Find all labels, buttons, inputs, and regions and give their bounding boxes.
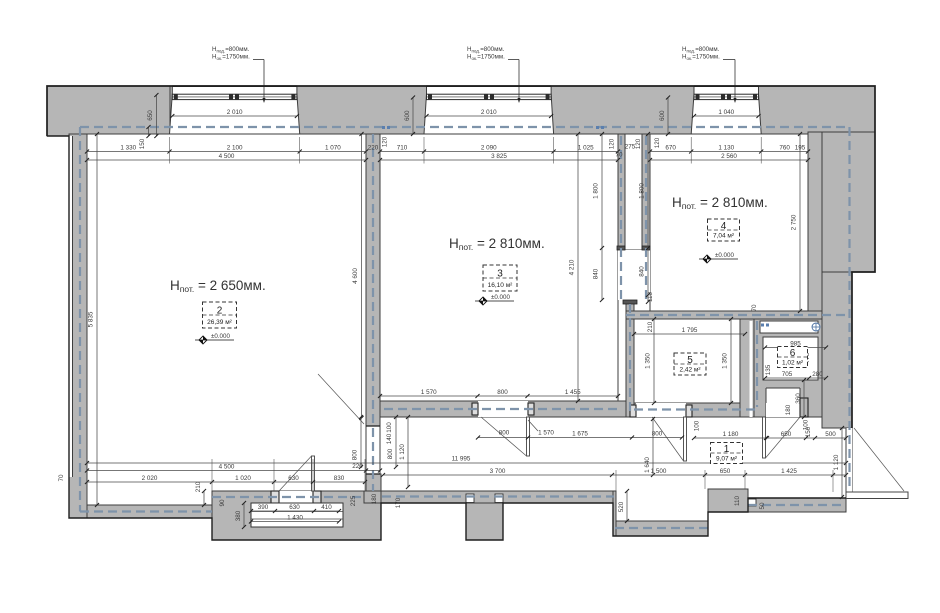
svg-text:280: 280 [812, 371, 823, 378]
svg-text:1 350: 1 350 [645, 353, 652, 369]
svg-text:4 500: 4 500 [219, 464, 235, 471]
svg-text:390: 390 [258, 504, 269, 511]
svg-text:1 425: 1 425 [781, 468, 797, 475]
svg-text:2 750: 2 750 [791, 214, 798, 230]
svg-text:2 010: 2 010 [227, 109, 243, 116]
svg-text:70: 70 [751, 304, 758, 312]
svg-text:135: 135 [765, 364, 772, 375]
svg-text:4 210: 4 210 [569, 259, 576, 275]
svg-text:3 700: 3 700 [490, 468, 506, 475]
svg-text:1 800: 1 800 [639, 183, 646, 199]
svg-text:1 020: 1 020 [235, 475, 251, 482]
svg-text:800: 800 [387, 448, 394, 459]
svg-text:1 675: 1 675 [572, 431, 588, 438]
svg-text:100: 100 [386, 422, 393, 433]
svg-text:110: 110 [647, 291, 654, 302]
svg-text:2,42 м²: 2,42 м² [679, 367, 701, 374]
svg-text:±0.000: ±0.000 [491, 294, 510, 301]
svg-text:1,02 м²: 1,02 м² [782, 359, 804, 366]
svg-text:2 100: 2 100 [227, 145, 243, 152]
svg-text:800: 800 [352, 449, 359, 460]
svg-text:1 120: 1 120 [399, 444, 406, 460]
svg-text:210: 210 [195, 481, 202, 492]
svg-text:650: 650 [781, 431, 792, 438]
svg-text:500: 500 [825, 431, 836, 438]
svg-text:120: 120 [609, 138, 616, 149]
svg-text:630: 630 [289, 504, 300, 511]
svg-text:670: 670 [665, 145, 676, 152]
svg-text:3 825: 3 825 [491, 153, 507, 160]
svg-text:1 500: 1 500 [651, 468, 667, 475]
svg-text:760: 760 [779, 145, 790, 152]
svg-text:220: 220 [368, 145, 379, 152]
svg-text:110: 110 [734, 495, 741, 506]
svg-text:16,10 м²: 16,10 м² [488, 282, 514, 289]
svg-text:2 010: 2 010 [481, 109, 497, 116]
svg-text:2 560: 2 560 [721, 153, 737, 160]
svg-text:1 040: 1 040 [718, 109, 734, 116]
svg-text:650: 650 [147, 110, 154, 121]
svg-text:1 570: 1 570 [421, 389, 437, 396]
svg-text:1 130: 1 130 [718, 145, 734, 152]
svg-text:120: 120 [635, 138, 642, 149]
svg-text:26,39 м²: 26,39 м² [207, 319, 233, 326]
svg-text:180: 180 [785, 404, 792, 415]
svg-text:1 800: 1 800 [593, 183, 600, 199]
svg-text:1 070: 1 070 [325, 145, 341, 152]
svg-text:70: 70 [58, 474, 65, 482]
svg-text:70: 70 [615, 152, 623, 159]
svg-text:1 180: 1 180 [723, 431, 739, 438]
svg-text:3: 3 [497, 269, 503, 280]
svg-text:275: 275 [625, 144, 636, 151]
svg-text:100: 100 [694, 420, 701, 431]
svg-text:1 025: 1 025 [578, 145, 594, 152]
svg-text:140: 140 [386, 433, 393, 444]
svg-text:630: 630 [288, 475, 299, 482]
svg-text:90: 90 [219, 499, 226, 507]
svg-text:600: 600 [659, 110, 666, 121]
svg-text:1 120: 1 120 [833, 454, 840, 470]
svg-text:2 090: 2 090 [481, 145, 497, 152]
svg-text:225: 225 [350, 495, 357, 506]
svg-text:830: 830 [334, 475, 345, 482]
svg-text:1 570: 1 570 [538, 430, 554, 437]
svg-text:840: 840 [593, 268, 600, 279]
svg-text:4 600: 4 600 [352, 268, 359, 284]
svg-text:120: 120 [382, 136, 389, 147]
svg-text:6: 6 [790, 348, 796, 359]
svg-text:4 500: 4 500 [219, 153, 235, 160]
svg-text:600: 600 [404, 110, 411, 121]
svg-text:380: 380 [235, 510, 242, 521]
svg-text:2: 2 [217, 306, 223, 317]
svg-text:1: 1 [724, 444, 730, 455]
svg-text:1 430: 1 430 [287, 515, 303, 522]
svg-text:800: 800 [499, 430, 510, 437]
svg-text:650: 650 [720, 468, 731, 475]
svg-text:705: 705 [782, 371, 793, 378]
svg-text:9,07 м²: 9,07 м² [716, 455, 738, 462]
svg-text:210: 210 [647, 321, 654, 332]
svg-text:1 455: 1 455 [565, 389, 581, 396]
svg-text:100: 100 [803, 419, 810, 430]
svg-text:410: 410 [321, 504, 332, 511]
svg-text:11 995: 11 995 [452, 455, 471, 462]
svg-text:1 795: 1 795 [682, 327, 698, 334]
svg-text:840: 840 [639, 266, 646, 277]
svg-text:1 330: 1 330 [120, 145, 136, 152]
svg-text:180: 180 [371, 493, 378, 504]
svg-text:5 835: 5 835 [88, 311, 95, 327]
svg-text:710: 710 [397, 145, 408, 152]
svg-text:5: 5 [687, 355, 693, 366]
svg-text:150: 150 [139, 138, 146, 149]
svg-text:800: 800 [497, 389, 508, 396]
svg-text:4: 4 [721, 221, 727, 232]
svg-text:7,04 м²: 7,04 м² [713, 233, 735, 240]
svg-text:±0.000: ±0.000 [715, 252, 734, 259]
svg-text:220: 220 [352, 463, 363, 470]
svg-text:2 020: 2 020 [142, 475, 158, 482]
svg-text:1 350: 1 350 [722, 353, 729, 369]
svg-text:120: 120 [654, 137, 661, 148]
svg-text:800: 800 [652, 431, 663, 438]
svg-text:±0.000: ±0.000 [211, 333, 230, 340]
svg-text:360: 360 [795, 393, 802, 404]
svg-text:50: 50 [759, 502, 766, 510]
svg-text:520: 520 [618, 501, 625, 512]
